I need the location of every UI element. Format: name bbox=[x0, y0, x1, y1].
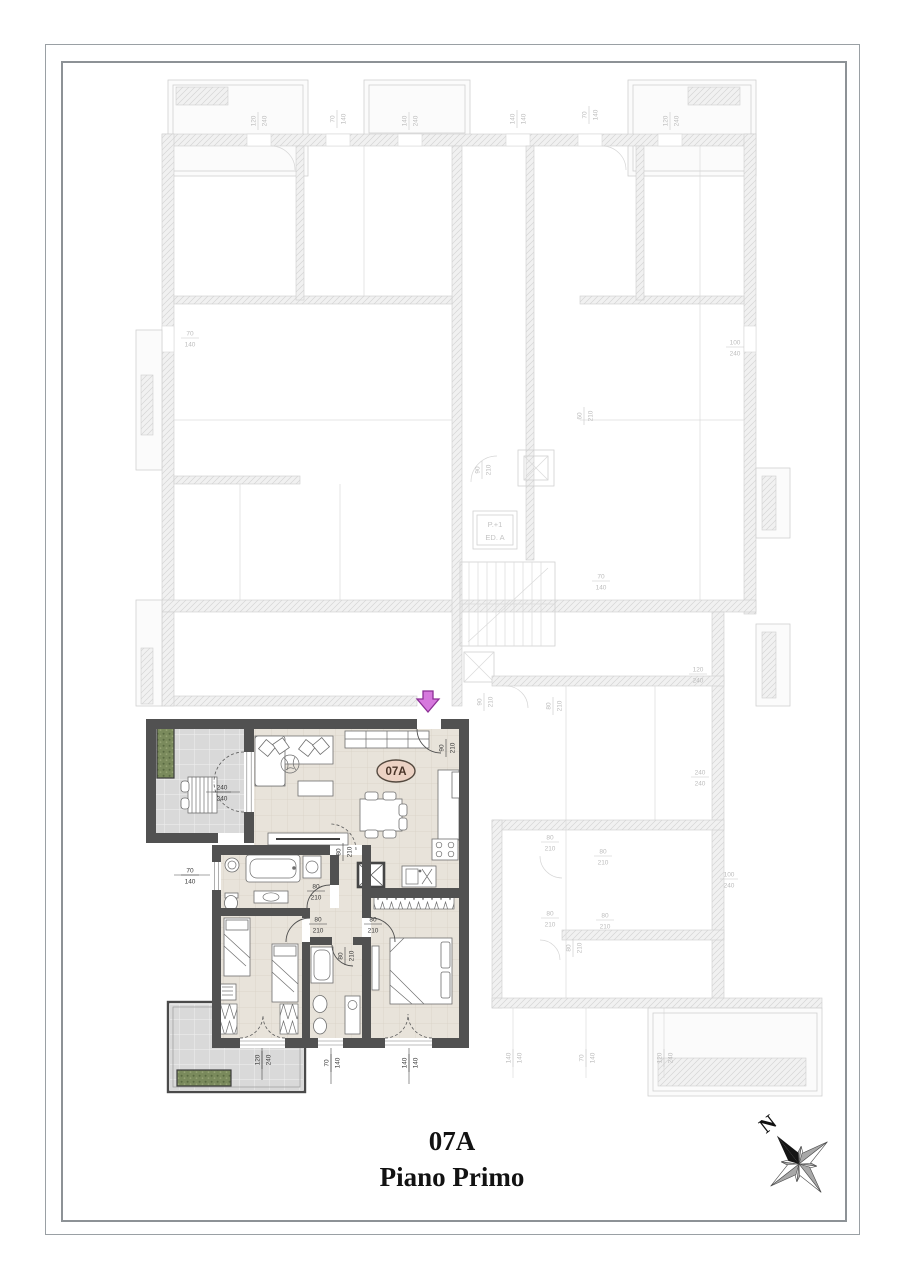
title-unit: 07A bbox=[61, 1124, 843, 1158]
svg-text:100: 100 bbox=[730, 340, 741, 347]
dimension-label-faded: 80210 bbox=[541, 835, 559, 853]
svg-text:240: 240 bbox=[413, 115, 420, 126]
dimension-label-faded: 140140 bbox=[510, 110, 528, 128]
svg-text:140: 140 bbox=[413, 1057, 420, 1068]
faded-planter bbox=[176, 87, 228, 105]
stairwell-label-line2: ED. A bbox=[485, 533, 504, 542]
svg-text:80: 80 bbox=[546, 702, 553, 710]
svg-text:70: 70 bbox=[579, 1054, 586, 1062]
svg-text:100: 100 bbox=[724, 872, 735, 879]
svg-text:140: 140 bbox=[517, 1052, 524, 1063]
shower bbox=[311, 947, 333, 983]
stairwell-label: P.+1 ED. A bbox=[473, 511, 517, 549]
svg-text:140: 140 bbox=[185, 342, 196, 349]
dimension-label-faded: 80210 bbox=[594, 849, 612, 867]
svg-text:90: 90 bbox=[439, 744, 446, 752]
svg-text:240: 240 bbox=[266, 1054, 273, 1065]
svg-text:80: 80 bbox=[312, 884, 320, 891]
svg-text:90: 90 bbox=[475, 466, 482, 474]
dimension-label-faded: 70140 bbox=[582, 106, 600, 124]
svg-text:70: 70 bbox=[330, 115, 337, 123]
vanity bbox=[254, 891, 288, 903]
svg-text:240: 240 bbox=[674, 115, 681, 126]
svg-text:70: 70 bbox=[597, 574, 605, 581]
dimension-label-faded: 70140 bbox=[579, 1049, 597, 1067]
faded-balcony-top-middle bbox=[364, 80, 470, 136]
plan-sheet: P.+1 ED. A bbox=[0, 0, 904, 1280]
svg-text:240: 240 bbox=[217, 785, 228, 792]
svg-text:210: 210 bbox=[577, 942, 584, 953]
svg-text:210: 210 bbox=[488, 696, 495, 707]
svg-text:70: 70 bbox=[582, 111, 589, 119]
svg-text:80: 80 bbox=[546, 835, 554, 842]
svg-text:140: 140 bbox=[521, 113, 528, 124]
title-block: 07A Piano Primo bbox=[61, 1124, 843, 1196]
stove bbox=[432, 839, 458, 860]
faded-stairwell bbox=[460, 562, 555, 646]
svg-text:120: 120 bbox=[255, 1054, 262, 1065]
svg-text:240: 240 bbox=[695, 770, 706, 777]
dining-table bbox=[360, 792, 407, 838]
svg-text:120: 120 bbox=[251, 115, 258, 126]
svg-text:140: 140 bbox=[506, 1052, 513, 1063]
unit-07a: 07A bbox=[146, 691, 469, 1092]
svg-text:240: 240 bbox=[695, 781, 706, 788]
svg-text:240: 240 bbox=[730, 351, 741, 358]
kitchen-sink bbox=[402, 866, 436, 887]
svg-text:60: 60 bbox=[577, 412, 584, 420]
dimension-label: 70140 bbox=[181, 868, 199, 886]
svg-text:210: 210 bbox=[557, 700, 564, 711]
faded-elevator-icon bbox=[518, 450, 554, 486]
svg-text:210: 210 bbox=[545, 922, 556, 929]
svg-text:70: 70 bbox=[186, 868, 194, 875]
wash-basin bbox=[225, 858, 239, 872]
svg-text:140: 140 bbox=[335, 1057, 342, 1068]
washbasin-column bbox=[303, 856, 321, 878]
unit-badge: 07A bbox=[377, 760, 415, 782]
svg-text:210: 210 bbox=[349, 950, 356, 961]
svg-text:80: 80 bbox=[566, 944, 573, 952]
coffee-table bbox=[298, 781, 333, 796]
shelf bbox=[372, 946, 379, 990]
dimension-label: 70140 bbox=[324, 1054, 342, 1072]
dimension-label-faded: 80210 bbox=[566, 939, 584, 957]
svg-text:240: 240 bbox=[217, 796, 228, 803]
dimension-label-faded: 80210 bbox=[546, 697, 564, 715]
faded-elevator-icon bbox=[464, 652, 494, 682]
dimension-label-faded: 60210 bbox=[577, 407, 595, 425]
svg-text:140: 140 bbox=[185, 879, 196, 886]
svg-text:70: 70 bbox=[324, 1059, 331, 1067]
title-floor: Piano Primo bbox=[61, 1158, 843, 1196]
svg-text:210: 210 bbox=[311, 895, 322, 902]
svg-text:210: 210 bbox=[347, 846, 354, 857]
svg-text:140: 140 bbox=[402, 115, 409, 126]
svg-text:240: 240 bbox=[668, 1052, 675, 1063]
svg-text:140: 140 bbox=[510, 113, 517, 124]
svg-text:80: 80 bbox=[369, 917, 377, 924]
dimension-label-faded: 240240 bbox=[691, 770, 709, 788]
wall-shelf bbox=[345, 731, 429, 748]
bidet bbox=[314, 1018, 327, 1034]
svg-text:210: 210 bbox=[313, 928, 324, 935]
sideboard bbox=[268, 833, 348, 845]
svg-text:210: 210 bbox=[588, 410, 595, 421]
svg-text:240: 240 bbox=[262, 115, 269, 126]
svg-text:80: 80 bbox=[546, 911, 554, 918]
dimension-label-faded: 140140 bbox=[506, 1049, 524, 1067]
single-bed bbox=[272, 944, 298, 1002]
svg-text:120: 120 bbox=[693, 667, 704, 674]
svg-text:210: 210 bbox=[450, 742, 457, 753]
toilet bbox=[225, 893, 239, 911]
dimension-label-faded: 70140 bbox=[592, 574, 610, 592]
dimension-label-faded: 100240 bbox=[726, 340, 744, 358]
unit-badge-label: 07A bbox=[385, 766, 406, 778]
vanity bbox=[345, 996, 360, 1034]
wardrobe bbox=[219, 1004, 237, 1034]
svg-text:140: 140 bbox=[593, 109, 600, 120]
desk bbox=[219, 984, 236, 1000]
dimension-label-faded: 80210 bbox=[596, 913, 614, 931]
planter-green bbox=[157, 722, 174, 778]
wardrobe bbox=[280, 1004, 298, 1034]
svg-text:80: 80 bbox=[336, 848, 343, 856]
svg-text:90: 90 bbox=[477, 698, 484, 706]
dimension-label: 140140 bbox=[402, 1054, 420, 1072]
planter-green bbox=[177, 1070, 231, 1086]
svg-text:140: 140 bbox=[590, 1052, 597, 1063]
faded-planter bbox=[658, 1058, 806, 1086]
svg-text:210: 210 bbox=[368, 928, 379, 935]
svg-text:120: 120 bbox=[657, 1052, 664, 1063]
svg-text:140: 140 bbox=[402, 1057, 409, 1068]
entrance-arrow-icon bbox=[417, 691, 439, 712]
svg-text:80: 80 bbox=[314, 917, 322, 924]
bathtub bbox=[246, 855, 300, 882]
svg-text:80: 80 bbox=[599, 849, 607, 856]
svg-text:120: 120 bbox=[663, 115, 670, 126]
svg-text:80: 80 bbox=[601, 913, 609, 920]
svg-text:210: 210 bbox=[486, 464, 493, 475]
toilet bbox=[313, 996, 327, 1013]
svg-text:140: 140 bbox=[341, 113, 348, 124]
dimension-label-faded: 90210 bbox=[475, 461, 493, 479]
svg-text:210: 210 bbox=[598, 860, 609, 867]
svg-text:80: 80 bbox=[338, 952, 345, 960]
dimension-label-faded: 70140 bbox=[330, 110, 348, 128]
svg-text:210: 210 bbox=[545, 846, 556, 853]
svg-text:140: 140 bbox=[596, 585, 607, 592]
terrace-upper bbox=[156, 722, 244, 833]
floorplan-drawing: P.+1 ED. A bbox=[0, 0, 904, 1280]
svg-text:240: 240 bbox=[693, 678, 704, 685]
dimension-label-faded: 80210 bbox=[541, 911, 559, 929]
faded-planter bbox=[688, 87, 740, 105]
svg-text:210: 210 bbox=[600, 924, 611, 931]
svg-text:70: 70 bbox=[186, 331, 194, 338]
double-bed bbox=[390, 938, 452, 1004]
stairwell-label-line1: P.+1 bbox=[488, 520, 503, 529]
svg-text:240: 240 bbox=[724, 883, 735, 890]
dimension-label-faded: 70140 bbox=[181, 331, 199, 349]
single-bed bbox=[224, 918, 250, 976]
dimension-label-faded: 90210 bbox=[477, 693, 495, 711]
